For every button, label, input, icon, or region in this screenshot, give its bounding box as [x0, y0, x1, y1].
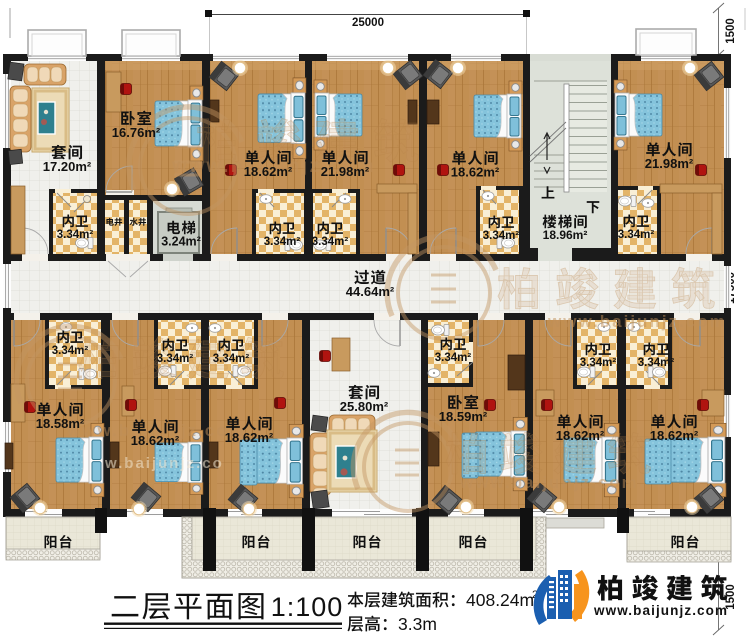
svg-text:3.34m²: 3.34m² — [580, 357, 617, 369]
svg-text:25.80m²: 25.80m² — [340, 399, 389, 414]
svg-text:21.98m²: 21.98m² — [321, 164, 370, 179]
svg-text:3.34m²: 3.34m² — [618, 229, 655, 241]
svg-text:3.34m²: 3.34m² — [435, 352, 472, 364]
svg-text:18.96m²: 18.96m² — [543, 228, 588, 242]
svg-text:3.34m²: 3.34m² — [483, 230, 520, 242]
svg-text:18.62m²: 18.62m² — [131, 433, 180, 448]
svg-text:18.62m²: 18.62m² — [225, 430, 274, 445]
svg-text:3.34m²: 3.34m² — [264, 236, 301, 248]
svg-text:16.76m²: 16.76m² — [112, 125, 161, 140]
svg-text:18.62m²: 18.62m² — [556, 428, 605, 443]
svg-text:1:100: 1:100 — [271, 592, 344, 622]
svg-text:18.58m²: 18.58m² — [36, 416, 85, 431]
svg-text:21.98m²: 21.98m² — [645, 156, 694, 171]
svg-text:44.64m²: 44.64m² — [346, 284, 395, 299]
svg-text:18.62m²: 18.62m² — [451, 165, 500, 180]
svg-text:1500: 1500 — [725, 18, 737, 44]
svg-text:17.20m²: 17.20m² — [43, 159, 92, 174]
svg-text:3.34m²: 3.34m² — [638, 357, 675, 369]
svg-text:3.34m²: 3.34m² — [312, 236, 349, 248]
svg-text:www.baijunjz.com: www.baijunjz.com — [459, 473, 639, 492]
svg-text:3.24m²: 3.24m² — [161, 235, 201, 249]
svg-text:3.3m: 3.3m — [398, 614, 437, 634]
svg-text:18.62m²: 18.62m² — [650, 428, 699, 443]
svg-text:www.baijunjz.com: www.baijunjz.com — [547, 312, 727, 331]
svg-text:3.34m²: 3.34m² — [52, 345, 89, 357]
svg-text:w.baijunjz.co: w.baijunjz.co — [104, 455, 224, 472]
svg-text:3.34m²: 3.34m² — [57, 229, 94, 241]
svg-text:408.24m: 408.24m — [466, 590, 534, 610]
svg-text:25000: 25000 — [352, 17, 384, 29]
svg-text:18.59m²: 18.59m² — [439, 409, 488, 424]
svg-text:18.62m²: 18.62m² — [244, 164, 293, 179]
svg-text:3.34m²: 3.34m² — [157, 353, 194, 365]
svg-text:3.34m²: 3.34m² — [213, 353, 250, 365]
svg-text:www.baijunjz.com: www.baijunjz.com — [593, 603, 728, 618]
